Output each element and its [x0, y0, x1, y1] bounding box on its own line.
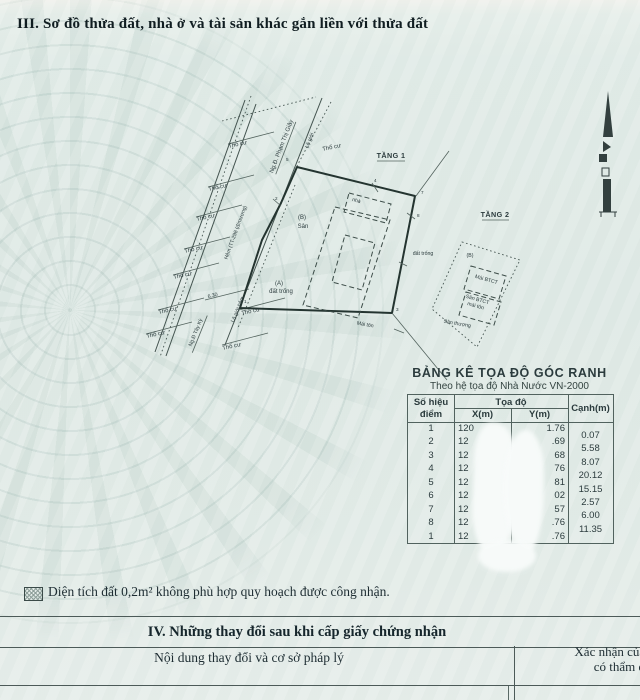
house-label: nhà — [351, 197, 361, 205]
adjacent-label: Thổ cư — [173, 270, 193, 281]
redaction-blur — [504, 430, 544, 552]
scanned-land-certificate-page: { "document": { "section3_title": "III. … — [0, 0, 640, 700]
corner-8: 8 — [417, 213, 420, 218]
confirm-column-line1: Xác nhận của cơ quan — [516, 645, 640, 660]
corner-3: 3 — [396, 307, 399, 312]
alley-name-label: Hẻm (TT-298 (đ/mương) — [224, 205, 249, 261]
empty-land-label: đất trống — [413, 251, 434, 257]
corner-4: 4 — [374, 178, 377, 183]
redaction-blur — [478, 540, 536, 572]
edge-length: 2.57 — [568, 496, 613, 509]
change-content-column-header: Nội dung thay đổi và cơ sở pháp lý — [0, 650, 506, 666]
edge-length: 6.00 — [568, 509, 613, 522]
coord-table-subtitle: Theo hệ tọa độ Nhà Nước VN-2000 — [407, 381, 612, 392]
edge-length: 8.07 — [568, 456, 613, 469]
zone-b2-code: (B) — [467, 253, 474, 259]
table-column-divider — [508, 686, 509, 700]
point-no: 2 — [408, 435, 454, 448]
zone-a-name: đất trống — [269, 289, 293, 295]
confirm-column-line2: có thẩm quyền — [516, 660, 640, 675]
road-boundary-label: Lộ giới — [304, 132, 315, 149]
edge-length: 15.15 — [568, 483, 613, 496]
zone-b-code: (B) — [298, 215, 306, 221]
adjacent-label: Thổ cư — [146, 329, 166, 340]
street2-name-label: Ng.Đ Tây Kỳ — [186, 313, 207, 353]
edge-length: 11.35 — [568, 523, 613, 536]
edge-length: 20.12 — [568, 469, 613, 482]
point-no: 4 — [408, 462, 454, 475]
point-no: 1 — [408, 530, 454, 543]
zone-a-code: (A) — [275, 281, 283, 287]
point-no: 1 — [408, 422, 454, 435]
concrete-yard-label: Sân BTCT mái tôn — [463, 294, 491, 313]
hatch-legend-icon — [24, 587, 43, 601]
adjacent-label: Thổ cư — [196, 212, 216, 223]
terrace-label: Sân thượng — [443, 319, 471, 330]
point-no: 6 — [408, 489, 454, 502]
point-no: 7 — [408, 503, 454, 516]
corner-5: 5 — [286, 157, 289, 162]
adjacent-label: Thổ cư — [184, 244, 204, 255]
edge-length: 5.58 — [568, 442, 613, 455]
metal-roof-label: Mái tôn — [356, 321, 374, 330]
svg-text:Ng.Đ. Phạm Thị Giây: Ng.Đ. Phạm Thị Giây — [269, 119, 295, 174]
coord-table-title: BẢNG KÊ TỌA ĐỘ GÓC RANH — [407, 366, 612, 380]
corner-7: 7 — [421, 190, 424, 195]
floor2-outline — [432, 242, 520, 347]
floor2-label: TẦNG 2 — [481, 209, 510, 219]
zone-b-name: Sân — [298, 224, 309, 230]
section4-title: IV. Những thay đổi sau khi cấp giấy chứn… — [148, 624, 446, 641]
point-no: 8 — [408, 516, 454, 529]
col-header-edge: Cạnh(m) — [568, 402, 613, 415]
floor1-label: TẦNG 1 — [377, 150, 406, 160]
col-header-x: X(m) — [454, 408, 511, 421]
corner-2: 2 — [275, 196, 278, 201]
col-header-y: Y(m) — [511, 408, 568, 421]
point-no: 3 — [408, 449, 454, 462]
section4-header: IV. Những thay đổi sau khi cấp giấy chứn… — [0, 616, 640, 648]
table-column-divider — [514, 646, 515, 700]
adjacent-label: Thổ cư — [322, 142, 342, 153]
edge-length: 0.07 — [568, 429, 613, 442]
point-no: 5 — [408, 476, 454, 489]
corner-1: 1 — [244, 299, 247, 304]
confirm-column-header: Xác nhận của cơ quan có thẩm quyền — [516, 645, 640, 674]
house-footprint — [303, 193, 391, 318]
width-dimension: 6.30 — [207, 292, 218, 300]
planning-note: Diện tích đất 0,2m² không phù hợp quy ho… — [48, 584, 608, 600]
north-arrow-icon — [599, 91, 617, 217]
col-header-point2: điểm — [408, 408, 454, 421]
table-rule — [0, 685, 640, 686]
street-name-label: Ng.Đ. Phạm Thị Giây — [269, 119, 296, 174]
concrete-roof-label: Mái BTCT — [474, 274, 499, 286]
